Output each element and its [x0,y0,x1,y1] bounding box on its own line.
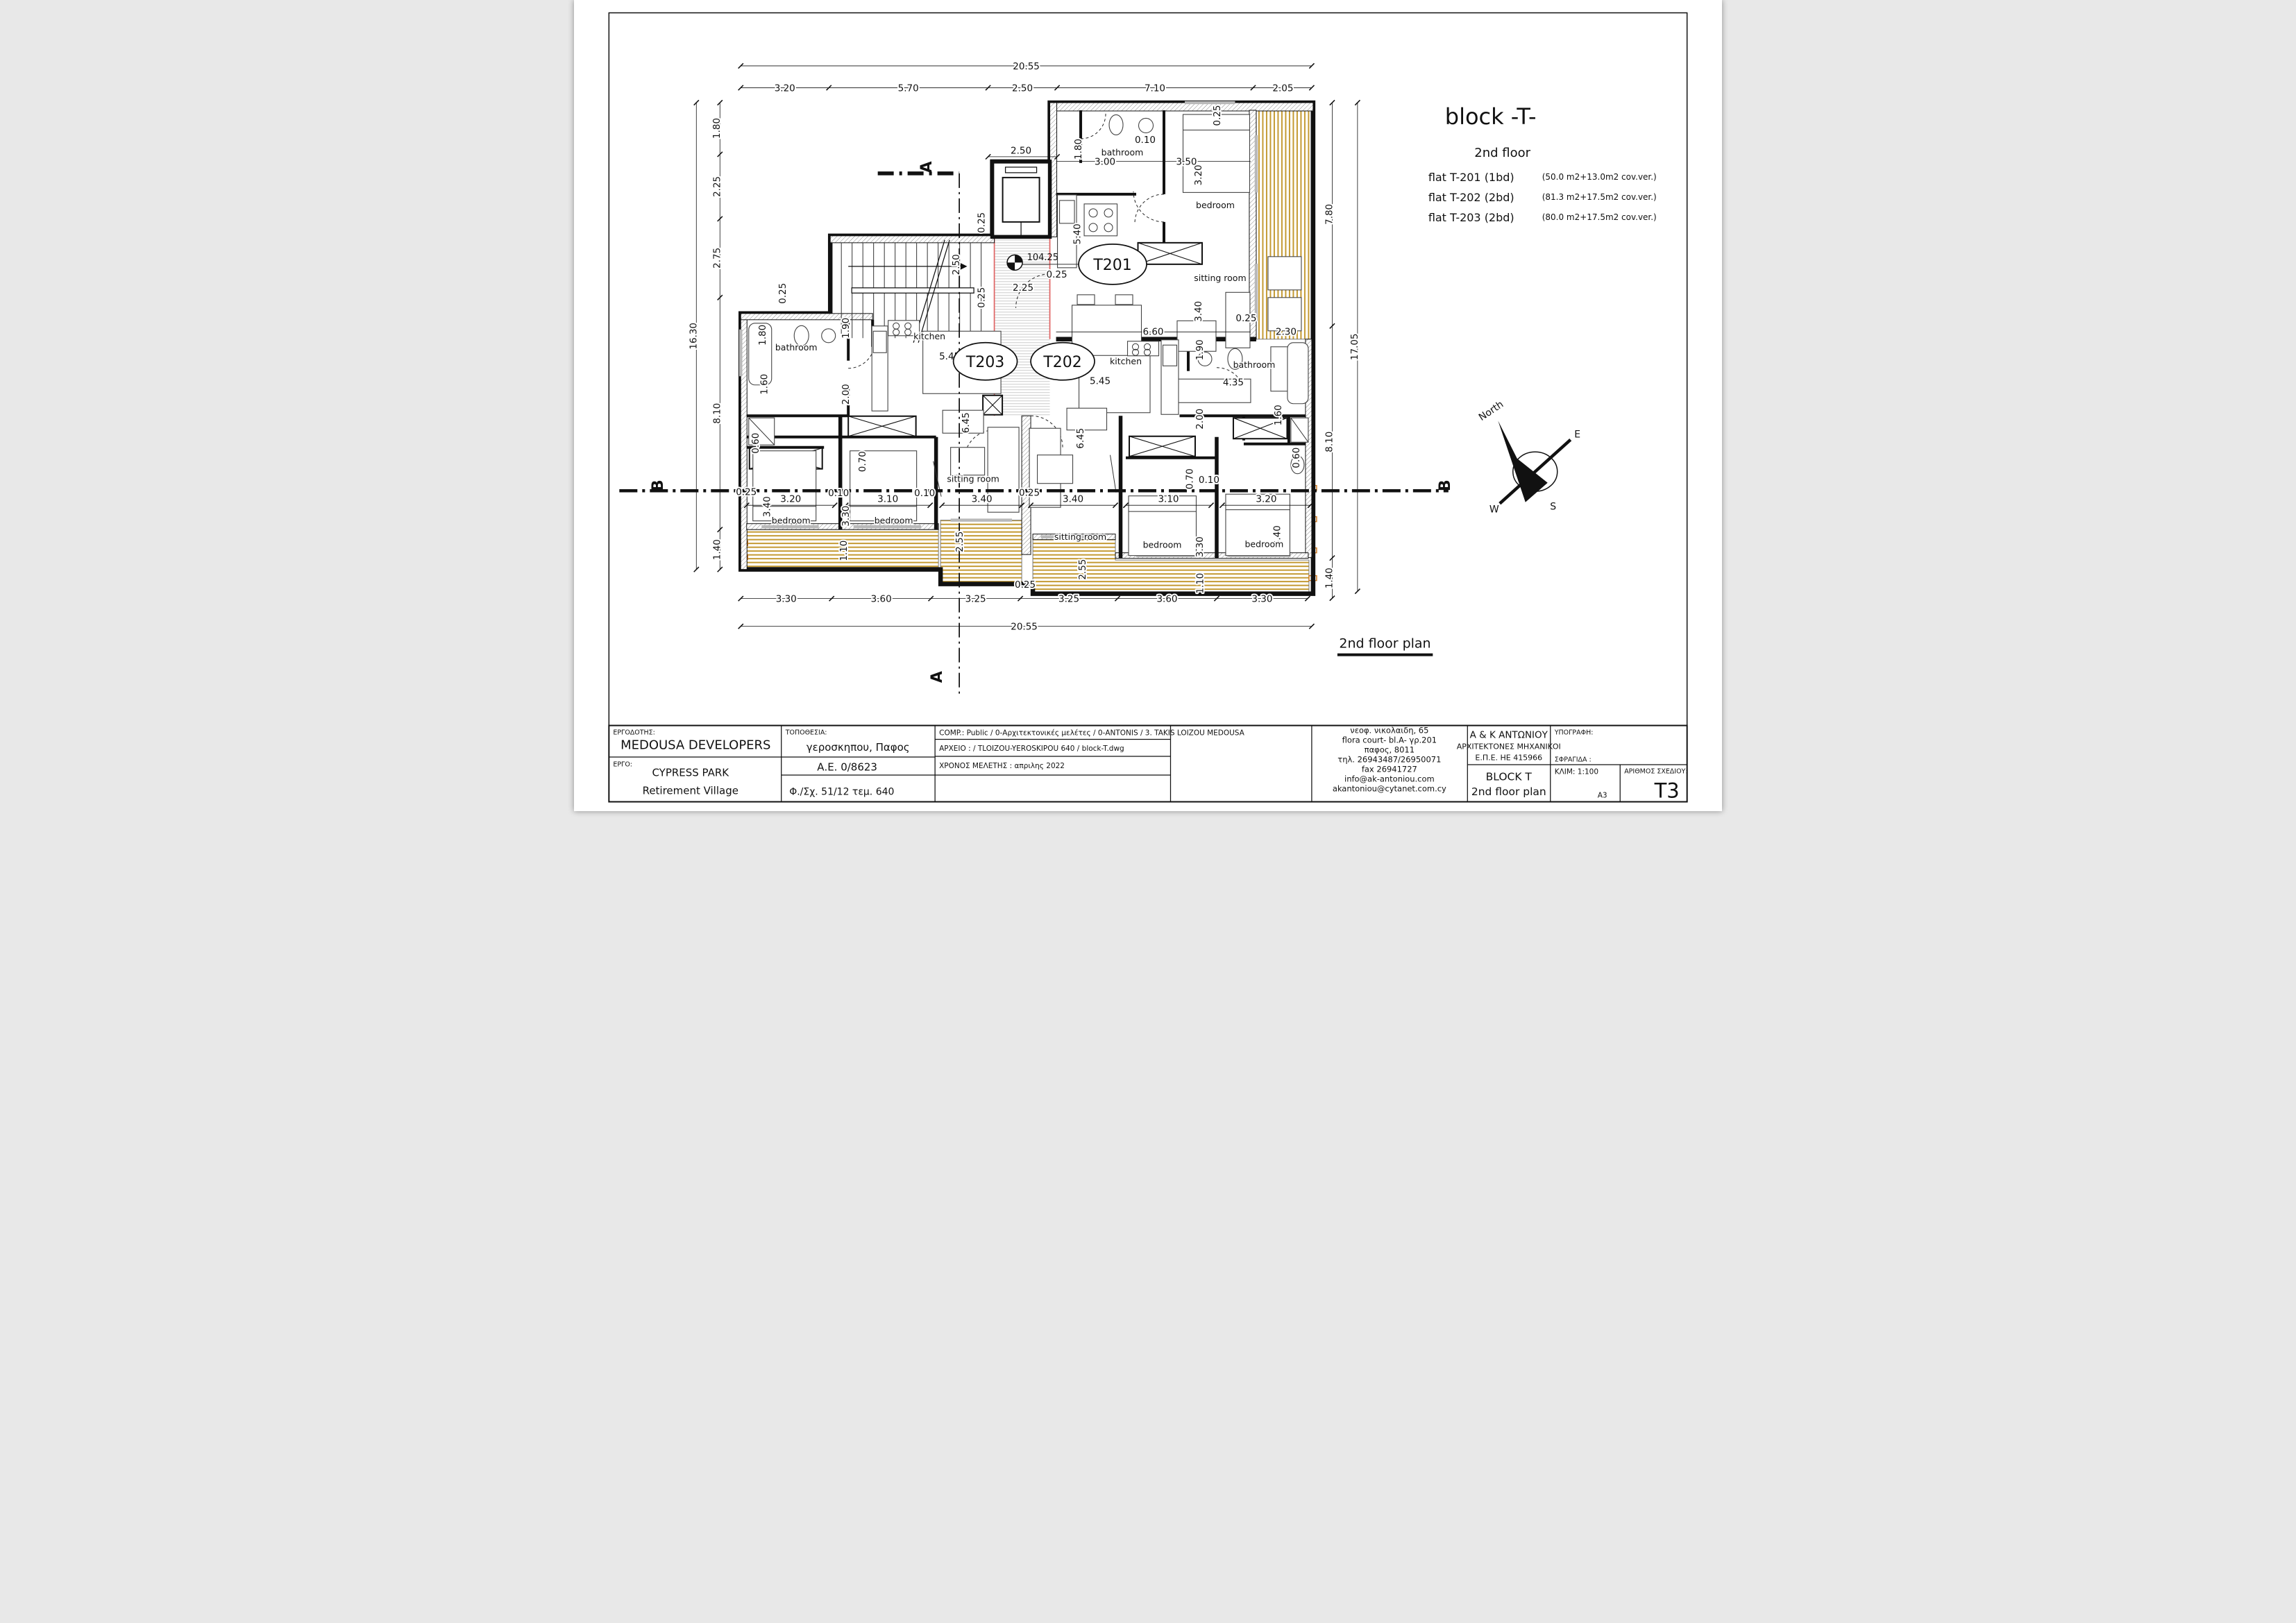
dim: 0.25 [777,283,788,304]
dim: 2.55 [954,532,965,552]
compass-w-label: W [1489,504,1499,516]
dim: 3.30 [1251,594,1272,605]
flat-name: flat T-201 (1bd) [1428,171,1514,184]
room-label: kitchen [1110,356,1142,366]
caption-text: 2nd floor plan [1339,636,1430,652]
tb-address-0: νεοφ. νικολαιδη, 65 [1350,726,1428,736]
dim: 0.60 [750,433,761,454]
dim: 3.40 [972,494,993,505]
dim: 0.25 [1212,105,1223,126]
dim: 3.30 [841,506,852,527]
section-a-top: A [918,161,936,173]
tb-ergo-2: Retirement Village [643,785,738,797]
dim: 3.60 [871,594,892,605]
dim: 2.25 [711,176,723,197]
room-label: bedroom [1143,540,1182,550]
tb-arithmos-label: ΑΡΙΘΜΟΣ ΣΧΕΔΙΟΥ: [1624,768,1687,776]
room-label: bedroom [1196,200,1235,210]
room-label: bathroom [775,342,818,352]
dim: 0.25 [1235,313,1256,324]
dim: 2.55 [1077,559,1088,580]
dim: 3.20 [775,83,795,94]
tb-sheet-no: T3 [1654,779,1680,803]
dim: 3.60 [1156,594,1177,605]
tb-arxeio: ΑΡΧΕΙΟ : / TLOIZOU-YEROSKIPOU 640 / bloc… [939,745,1124,753]
block-title: block -T- [1445,103,1537,130]
tb-paper: A3 [1598,792,1607,800]
dim: 0.25 [1047,269,1067,280]
flat-area: (50.0 m2+13.0m2 cov.ver.) [1542,172,1657,182]
dim: 2.25 [1013,282,1033,294]
tb-firm-1: A & K ΑΝΤΩΝΙΟΥ [1470,730,1548,741]
tb-address-2: παφος, 8011 [1365,745,1415,755]
dim: 1.90 [1195,339,1206,360]
dim: 5.70 [898,83,919,94]
dim: 2.05 [1272,83,1293,94]
dim: 6.45 [1075,428,1086,449]
dim: 1.80 [711,118,723,139]
dim: 0.10 [828,488,849,499]
dim: 0.60 [1291,448,1302,468]
dim: 8.10 [711,403,723,424]
level-label: 104.25 [1027,253,1058,263]
tb-block-label: BLOCK T [1486,771,1533,783]
dim: 1.10 [838,541,850,561]
dim: 5.40 [1072,223,1083,244]
tb-address-4: fax 26941727 [1362,765,1417,774]
dim: 0.10 [1199,475,1219,486]
dim: 1.90 [841,318,852,339]
dim: 3.25 [965,594,986,605]
dim: 2.50 [951,254,962,275]
tb-plan-label: 2nd floor plan [1471,785,1546,798]
dim: 3.40 [1063,494,1083,505]
dim: 8.10 [1324,432,1335,452]
dim: 1.40 [1324,568,1335,588]
dim: 1.40 [711,539,723,560]
flat-tag: T201 [1092,257,1131,274]
flat-tag: T203 [965,354,1004,371]
flat-tag: T202 [1043,354,1081,371]
tb-topothesia: γεροσκηπου, Παφος [807,741,910,754]
dim: 2.75 [711,248,723,269]
room-label: kitchen [913,331,945,341]
room-label: bathroom [1233,359,1276,370]
flat-area: (80.0 m2+17.5m2 cov.ver.) [1542,212,1657,222]
dim: 3.25 [1058,594,1079,605]
dim: 2.00 [841,384,852,405]
dim: 3.10 [877,494,898,505]
dim: 3.30 [1195,536,1206,557]
dim: 3.30 [776,594,797,605]
dim: 0.25 [977,212,988,233]
tb-sfragida-label: ΣΦΡΑΓΙΔΑ : [1555,756,1592,764]
dim: 7.10 [1145,83,1165,94]
dim: 2.50 [1012,83,1033,94]
tb-fsx: Φ./Σχ. 51/12 τεμ. 640 [789,787,894,798]
dim: 1.80 [757,325,768,346]
room-label: bedroom [772,516,811,526]
room-label: bedroom [1245,539,1284,550]
dim: 7.80 [1324,204,1335,225]
dim: 1.10 [1195,573,1206,594]
tb-klim: ΚΛΙΜ: 1:100 [1555,768,1598,776]
dim: 4.35 [1223,377,1244,388]
dim: 3.20 [1193,164,1204,185]
dim: 2.50 [1011,145,1031,156]
section-b-left: B [650,479,667,491]
dim: 5.45 [1090,375,1111,386]
dim: 6.45 [961,412,972,433]
tb-ergo-label: ΕΡΓΟ: [613,761,632,769]
title-block: ΕΡΓΟΔΟΤΗΣ: MEDOUSA DEVELOPERS ΕΡΓΟ: CYPR… [609,726,1687,803]
flat-name: flat T-202 (2bd) [1428,191,1514,204]
tb-ergo-1: CYPRESS PARK [652,767,729,779]
dim: 1.60 [759,374,770,395]
section-b-right: B [1437,479,1454,491]
dim: 0.25 [1015,579,1036,590]
tb-address-3: τηλ. 26943487/26950071 [1337,755,1441,765]
lift [993,162,1050,237]
tb-address-5: info@ak-antoniou.com [1344,774,1435,784]
dim: 1.80 [1073,139,1084,160]
dim: 2.00 [1195,409,1206,430]
tb-ae: Α.Ε. 0/8623 [817,761,877,774]
compass-s-label: S [1550,502,1556,513]
flat-name: flat T-203 (2bd) [1428,211,1514,224]
flat-area: (81.3 m2+17.5m2 cov.ver.) [1542,192,1657,202]
tb-firm-2: ΑΡΧΙΤΕΚΤΟΝΕΣ ΜΗΧΑΝΙΚΟΙ [1457,742,1561,751]
tb-comp: COMP.: Public / 0-Αρχιτεκτονικές μελέτες… [939,729,1245,738]
dim: 0.70 [1184,468,1195,489]
drawing-sheet: A A B B 20.55 3.20 5.70 2.50 7.10 2.05 1… [574,0,1722,811]
dim: 3.20 [1256,494,1276,505]
room-label: bedroom [875,516,913,526]
room-label: bathroom [1101,147,1144,158]
dim: 1.60 [1273,405,1284,425]
dim: 2.30 [1276,326,1297,337]
tb-topothesia-label: ΤΟΠΟΘΕΣΙΑ: [785,729,827,737]
tb-firm-3: Ε.Π.Ε. ΗΕ 415966 [1475,754,1542,763]
dim: 3.10 [1158,494,1179,505]
floor-label: 2nd floor [1474,146,1530,160]
tb-ypografi-label: ΥΠΟΓΡΑΦΗ: [1554,729,1594,737]
dim: 3.40 [1193,301,1204,322]
room-label: sitting room [947,474,999,484]
dim: 20.55 [1013,61,1040,72]
dim: 6.60 [1142,326,1163,337]
dim: 3.40 [762,496,773,517]
room-label: sitting room [1054,532,1106,542]
tb-address-1: flora court- bl.A- γρ.201 [1342,736,1437,745]
dim: 0.25 [977,287,988,308]
floor-plan-canvas: A A B B 20.55 3.20 5.70 2.50 7.10 2.05 1… [574,0,1722,811]
section-a-bottom: A [929,671,946,683]
compass-e-label: E [1574,430,1580,441]
tb-address-6: akantoniou@cytanet.com.cy [1333,784,1446,794]
tb-ergodotis: MEDOUSA DEVELOPERS [621,738,770,753]
dim: 0.25 [1019,488,1040,499]
dim: 20.55 [1011,622,1038,633]
tb-ergodotis-label: ΕΡΓΟΔΟΤΗΣ: [613,729,655,737]
dim: 0.25 [736,487,757,498]
dim: 17.05 [1349,333,1360,360]
room-label: sitting room [1194,273,1246,283]
dim: 0.10 [1135,135,1156,146]
dim: 16.30 [688,323,699,350]
dim: 3.00 [1095,156,1115,167]
tb-xronos: ΧΡΟΝΟΣ ΜΕΛΕΤΗΣ : απριλης 2022 [939,762,1065,770]
dim: 3.20 [780,494,801,505]
dim: 0.70 [857,451,868,472]
veranda-middle [940,520,1022,584]
dim: 0.10 [914,488,935,499]
